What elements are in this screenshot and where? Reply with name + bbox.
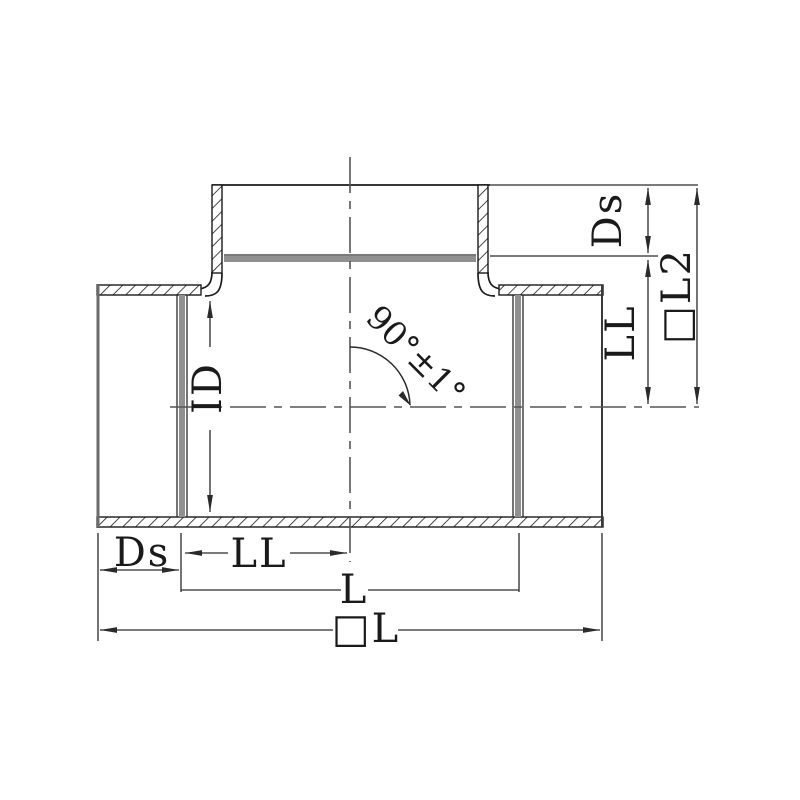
label-ll-right: LL [598, 304, 644, 361]
label-box-l2-right: □L2 [654, 248, 700, 344]
branch-right-wall-hatch [478, 185, 488, 273]
run-top-left-wall-hatch [97, 285, 201, 295]
run-top-right-wall-hatch [499, 285, 603, 295]
label-box-l-bottom: □L [332, 606, 400, 652]
tee-fitting-technical-drawing: Ds LL L □L ID Ds LL □L2 90°±1° [0, 0, 800, 800]
label-ds-bottom: Ds [114, 530, 171, 576]
label-angle: 90°±1° [359, 297, 474, 412]
label-ds-right: Ds [585, 192, 631, 249]
label-id-left: ID [185, 362, 231, 414]
drawing-canvas: Ds LL L □L ID Ds LL □L2 90°±1° [0, 0, 800, 800]
label-ll-bottom: LL [230, 531, 287, 577]
branch-left-wall-hatch [212, 185, 222, 273]
